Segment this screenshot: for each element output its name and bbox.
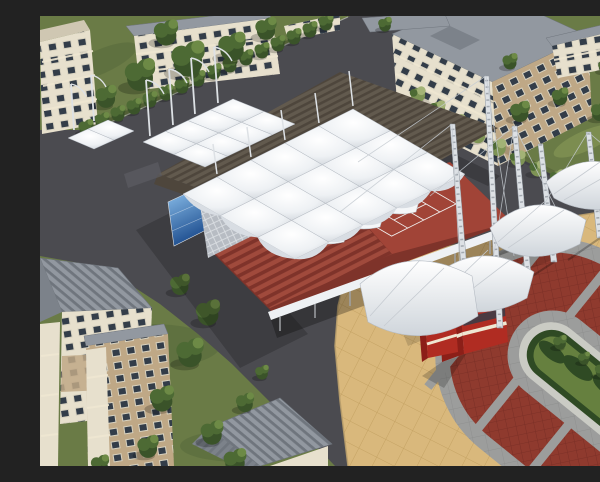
- walkway-sail: [360, 260, 478, 336]
- building-block: [40, 20, 98, 134]
- building-block: [40, 322, 60, 466]
- aerial-render: Aerial 3D architectural rendering of a s…: [40, 16, 600, 466]
- render-canvas: [40, 16, 600, 466]
